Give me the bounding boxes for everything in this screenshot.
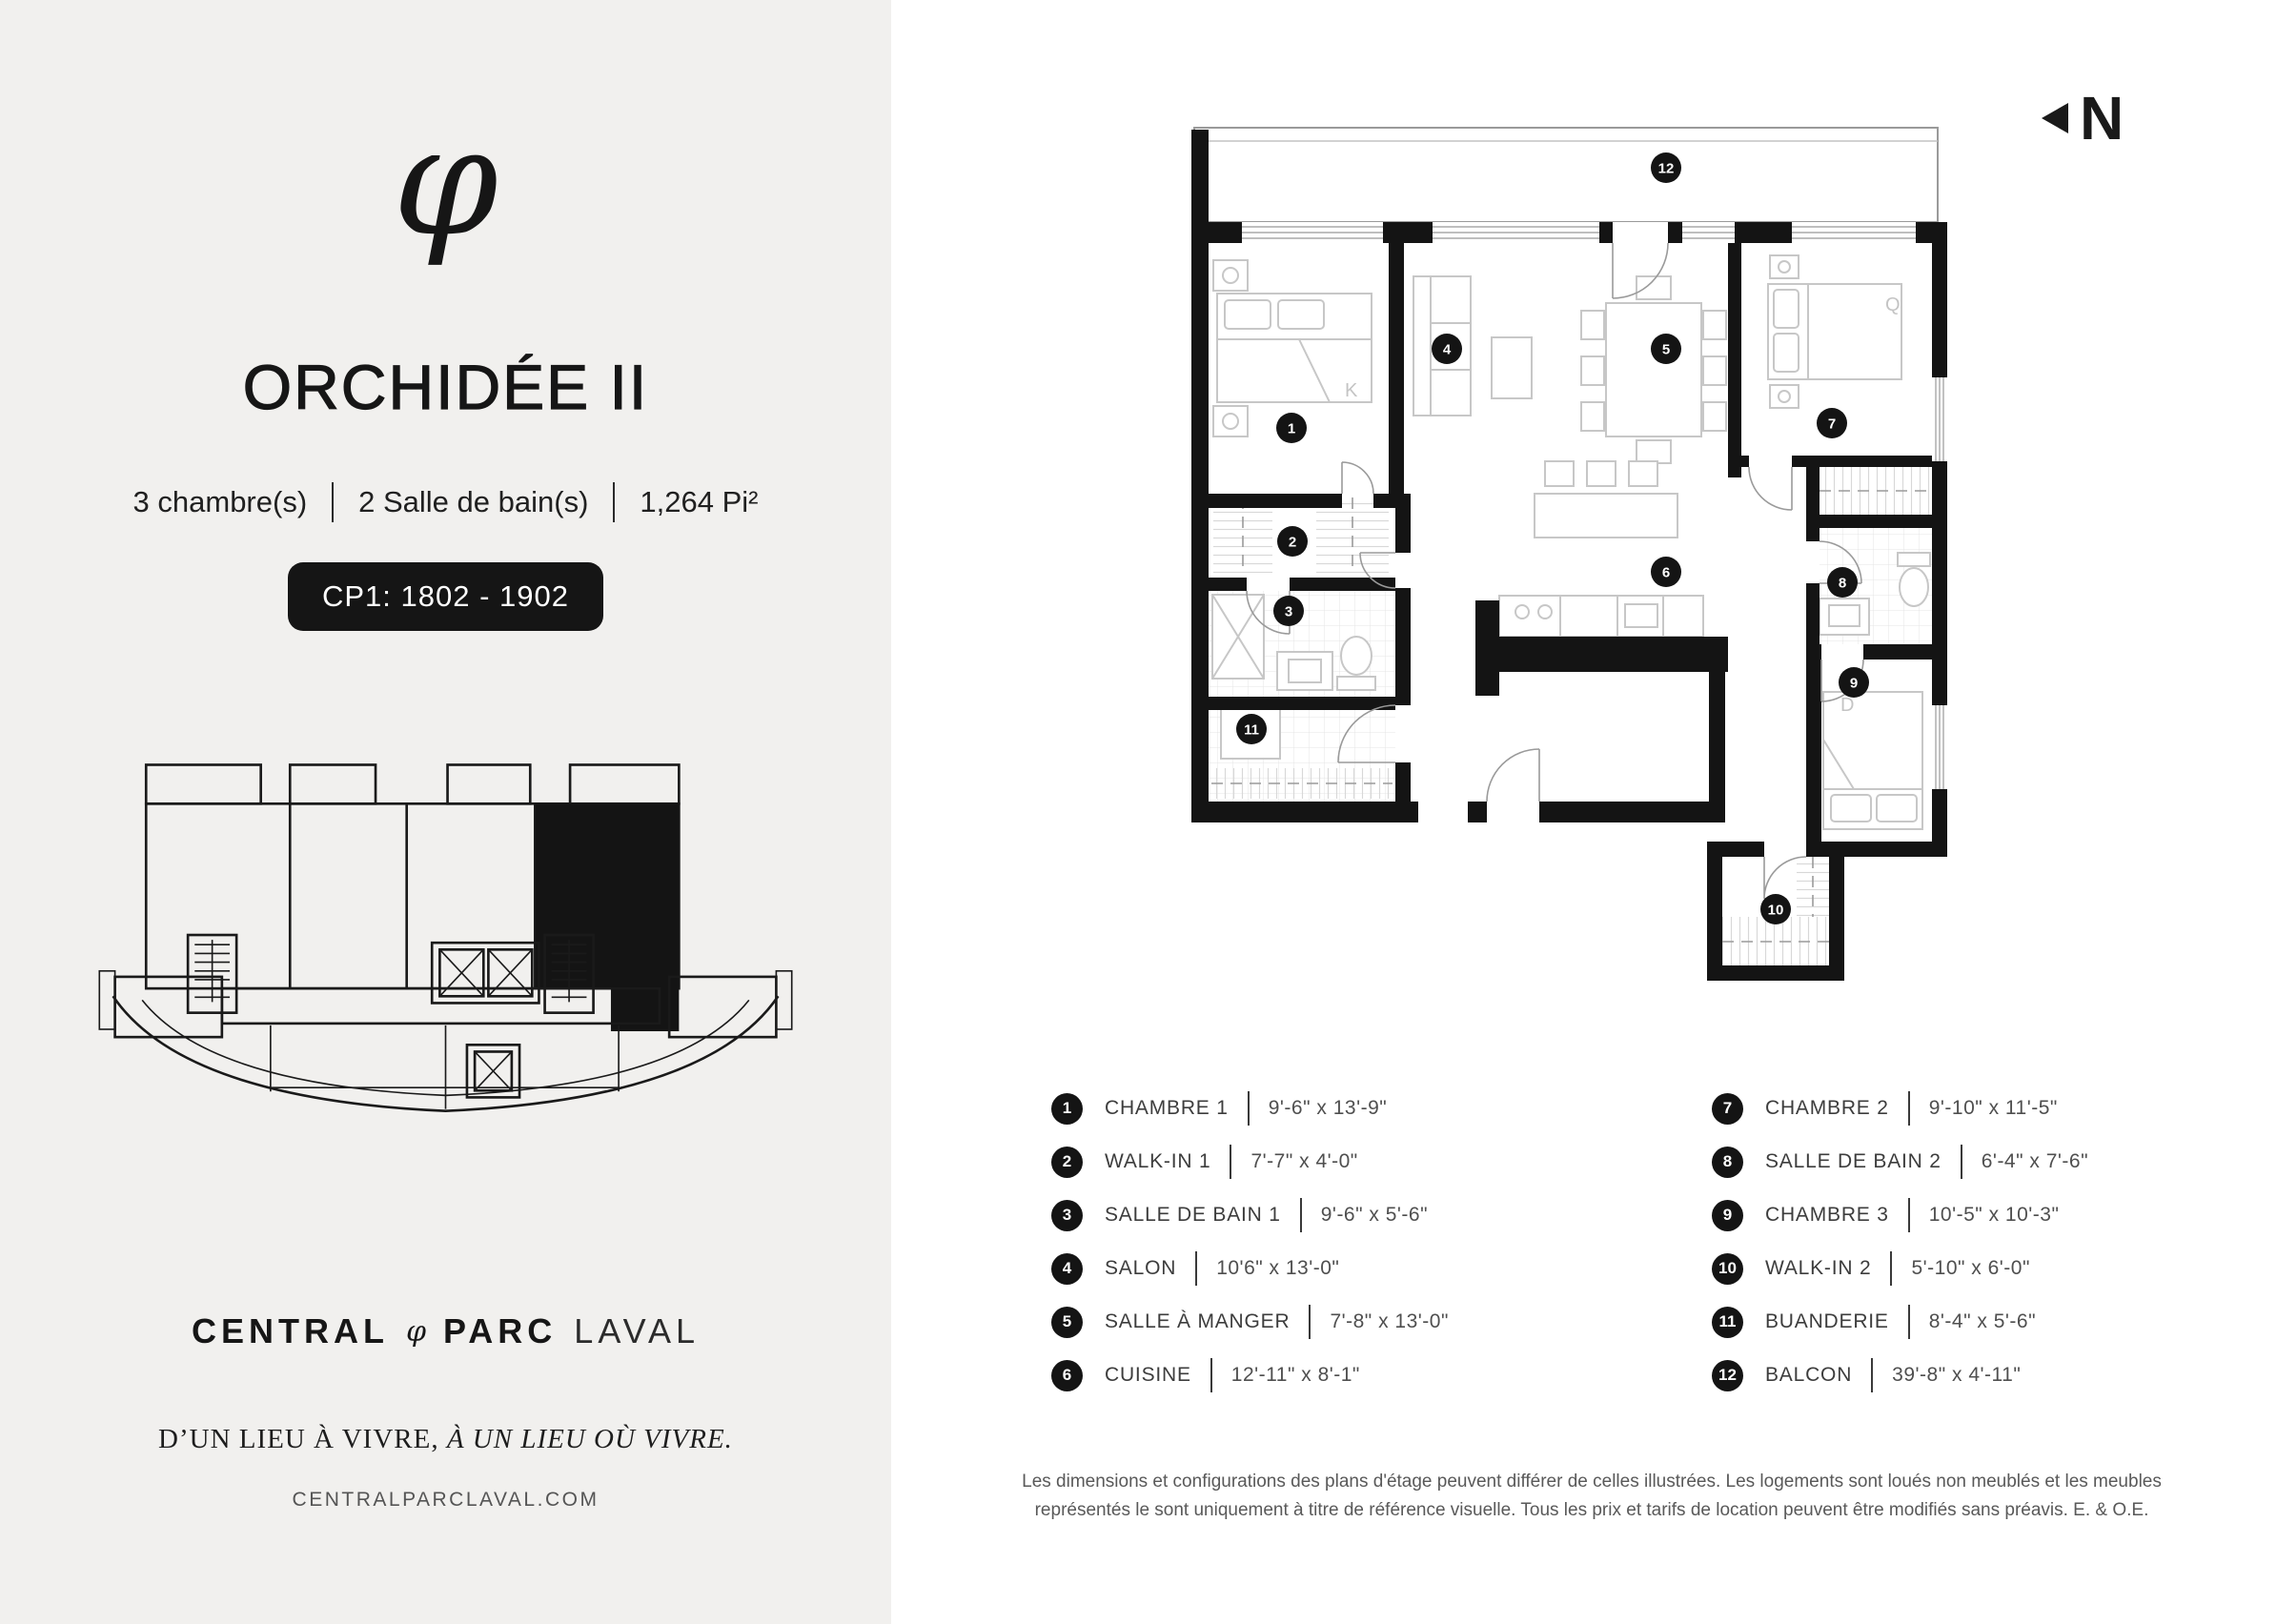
brand-phi-icon: φ [406,1315,426,1349]
plan-marker: 11 [1236,714,1267,744]
legend-item: 7CHAMBRE 29'-10" x 11'-5" [1712,1092,2088,1125]
legend-column-left: 1CHAMBRE 19'-6" x 13'-9"2WALK-IN 17'-7" … [1051,1092,1449,1412]
plan-marker: 2 [1277,526,1308,557]
legend-divider [1871,1358,1873,1392]
unit-specs: 3 chambre(s) 2 Salle de bain(s) 1,264 Pi… [0,482,891,522]
legend-divider [1908,1198,1910,1232]
legend-item: 5SALLE À MANGER7'-8" x 13'-0" [1051,1306,1449,1338]
floor-plan: 123456789101112 KQD [1187,122,1968,999]
legend-divider [1908,1305,1910,1339]
kitchen-counter [1499,596,1703,637]
legend-item: 6CUISINE12'-11" x 8'-1" [1051,1359,1449,1391]
elevator-icon [467,1045,519,1097]
legend-dimension: 10'6" x 13'-0" [1216,1257,1339,1280]
legend-number-badge: 8 [1712,1147,1743,1178]
legend-item: 4SALON10'6" x 13'-0" [1051,1252,1449,1285]
plan-marker: 4 [1432,334,1462,364]
building-key-plan [86,745,805,1122]
svg-text:11: 11 [1244,721,1259,738]
legend-number-badge: 10 [1712,1253,1743,1285]
legend-room-label: BALCON [1765,1364,1852,1387]
legend-divider [1195,1251,1197,1286]
balcony [1194,128,1938,222]
legend-dimension: 5'-10" x 6'-0" [1911,1257,2029,1280]
plan-marker: 10 [1760,894,1791,924]
legend-divider [1300,1198,1302,1232]
legend-number-badge: 5 [1051,1307,1083,1338]
legend-divider [1210,1358,1212,1392]
legend-number-badge: 9 [1712,1200,1743,1231]
plan-marker: 3 [1273,596,1304,626]
north-label: N [2080,88,2124,149]
spec-bedrooms: 3 chambre(s) [133,485,308,519]
legend-room-label: CHAMBRE 3 [1765,1204,1889,1227]
legend-item: 10WALK-IN 25'-10" x 6'-0" [1712,1252,2088,1285]
brand-lockup: CENTRAL φ PARC LAVAL [0,1311,891,1351]
highlighted-unit [535,803,679,988]
kitchen-island [1535,461,1677,538]
legend-number-badge: 7 [1712,1093,1743,1125]
legend-item: 12BALCON39'-8" x 4'-11" [1712,1359,2088,1391]
svg-text:10: 10 [1768,902,1784,918]
svg-text:8: 8 [1839,575,1846,591]
website-url: CENTRALPARCLAVAL.COM [0,1489,891,1512]
legend-room-label: SALON [1105,1257,1176,1280]
page-title: ORCHIDÉE II [0,351,891,423]
legend-dimension: 9'-6" x 13'-9" [1269,1097,1387,1120]
legend-room-label: SALLE DE BAIN 2 [1765,1150,1942,1173]
plan-marker: 9 [1839,667,1869,698]
svg-text:7: 7 [1828,416,1836,432]
stair-core-icon [188,935,236,1013]
legend-number-badge: 3 [1051,1200,1083,1231]
legend-room-label: WALK-IN 2 [1765,1257,1871,1280]
spec-area: 1,264 Pi² [640,485,758,519]
plan-marker: 12 [1651,152,1681,183]
legend-divider [1248,1091,1250,1126]
legend-dimension: 9'-10" x 11'-5" [1929,1097,2058,1120]
tagline-italic: À UN LIEU OÙ VIVRE. [447,1424,733,1454]
svg-text:5: 5 [1662,341,1670,357]
north-indicator: N [2042,88,2124,149]
legend-divider [1230,1145,1231,1179]
svg-text:4: 4 [1443,341,1452,357]
phi-logo-icon: φ [0,107,891,257]
legend-room-label: CHAMBRE 1 [1105,1097,1229,1120]
legend-column-right: 7CHAMBRE 29'-10" x 11'-5"8SALLE DE BAIN … [1712,1092,2088,1412]
legend-dimension: 7'-7" x 4'-0" [1250,1150,1357,1173]
disclaimer-text: Les dimensions et configurations des pla… [982,1468,2202,1526]
spec-divider [613,482,615,522]
legend-number-badge: 4 [1051,1253,1083,1285]
legend-room-label: CUISINE [1105,1364,1191,1387]
brand-laval: LAVAL [574,1311,700,1351]
legend-number-badge: 6 [1051,1360,1083,1391]
legend-divider [1961,1145,1962,1179]
legend-item: 9CHAMBRE 310'-5" x 10'-3" [1712,1199,2088,1231]
chambre2-closet [1820,467,1947,515]
legend-room-label: WALK-IN 1 [1105,1150,1210,1173]
plan-marker: 8 [1827,567,1858,598]
plan-marker: 6 [1651,557,1681,587]
north-arrow-icon [2042,103,2068,133]
legend-dimension: 10'-5" x 10'-3" [1929,1204,2060,1227]
svg-text:12: 12 [1658,160,1675,176]
brand-parc: PARC [443,1311,557,1351]
legend-item: 1CHAMBRE 19'-6" x 13'-9" [1051,1092,1449,1125]
elevator-icon [432,943,539,1003]
legend-dimension: 39'-8" x 4'-11" [1892,1364,2021,1387]
tagline-regular: D’UN LIEU À VIVRE, [158,1424,439,1454]
legend-dimension: 8'-4" x 5'-6" [1929,1310,2036,1333]
legend-dimension: 12'-11" x 8'-1" [1231,1364,1360,1387]
legend-number-badge: 12 [1712,1360,1743,1391]
svg-text:6: 6 [1662,564,1670,580]
spec-divider [332,482,334,522]
svg-text:2: 2 [1289,534,1296,550]
plan-marker: 1 [1276,413,1307,443]
sidebar: φ ORCHIDÉE II 3 chambre(s) 2 Salle de ba… [0,0,891,1624]
brand-tagline: D’UN LIEU À VIVRE, À UN LIEU OÙ VIVRE. [0,1424,891,1455]
legend-dimension: 9'-6" x 5'-6" [1321,1204,1428,1227]
spec-bathrooms: 2 Salle de bain(s) [358,485,588,519]
legend-room-label: CHAMBRE 2 [1765,1097,1889,1120]
legend-number-badge: 1 [1051,1093,1083,1125]
legend-number-badge: 11 [1712,1307,1743,1338]
legend-divider [1309,1305,1311,1339]
legend-room-label: SALLE À MANGER [1105,1310,1290,1333]
legend-divider [1908,1091,1910,1126]
legend-item: 8SALLE DE BAIN 26'-4" x 7'-6" [1712,1146,2088,1178]
legend-dimension: 7'-8" x 13'-0" [1330,1310,1448,1333]
legend-item: 11BUANDERIE8'-4" x 5'-6" [1712,1306,2088,1338]
brand-central: CENTRAL [192,1311,389,1351]
legend-number-badge: 2 [1051,1147,1083,1178]
bed-size-label: D [1840,695,1854,716]
legend-dimension: 6'-4" x 7'-6" [1982,1150,2088,1173]
unit-number-badge: CP1: 1802 - 1902 [288,562,603,631]
svg-text:3: 3 [1285,603,1292,619]
legend-item: 2WALK-IN 17'-7" x 4'-0" [1051,1146,1449,1178]
plan-marker: 7 [1817,408,1847,438]
legend-room-label: BUANDERIE [1765,1310,1889,1333]
svg-text:1: 1 [1288,420,1295,436]
bed-size-label: Q [1885,294,1901,315]
plan-marker: 5 [1651,334,1681,364]
unit-badge-wrap: CP1: 1802 - 1902 [0,562,891,631]
bed-size-label: K [1345,380,1358,401]
legend-item: 3SALLE DE BAIN 19'-6" x 5'-6" [1051,1199,1449,1231]
bed-chambre3 [1823,692,1922,829]
svg-text:9: 9 [1850,675,1858,691]
legend-room-label: SALLE DE BAIN 1 [1105,1204,1281,1227]
legend-divider [1890,1251,1892,1286]
